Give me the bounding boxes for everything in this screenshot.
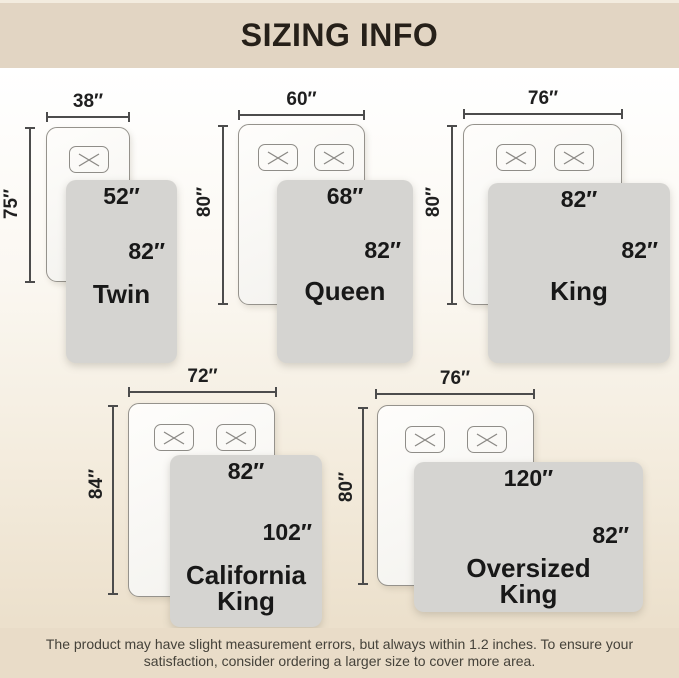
- dimension-line: [238, 114, 365, 116]
- pillow-x-icon: [265, 150, 291, 166]
- pillow-x-icon: [561, 150, 587, 166]
- pillow: [154, 424, 194, 451]
- pillow-x-icon: [76, 152, 102, 168]
- bed-width-dimension: 60″: [238, 89, 365, 116]
- bed-width-dimension: 76″: [463, 88, 623, 115]
- bed-length-label: 80″: [423, 172, 445, 232]
- bed-length-label: 75″: [1, 174, 23, 234]
- blanket: 82″ 102″ California King: [170, 455, 322, 627]
- blanket-length-label: 82″: [592, 522, 629, 549]
- footer-bar: The product may have slight measurement …: [0, 628, 679, 678]
- blanket-length-label: 82″: [364, 237, 401, 264]
- dimension-line: [46, 116, 130, 118]
- pillow-x-icon: [321, 150, 347, 166]
- blanket-width-label: 82″: [488, 186, 670, 213]
- pillow: [467, 426, 507, 453]
- blanket: 68″ 82″ Queen: [277, 180, 413, 363]
- disclaimer-line-2: satisfaction, consider ordering a larger…: [0, 653, 679, 670]
- pillow: [405, 426, 445, 453]
- blanket-length-label: 102″: [263, 519, 312, 546]
- dimension-line: [375, 393, 535, 395]
- pillow: [314, 144, 354, 171]
- bed-width-label: 72″: [187, 366, 217, 388]
- bed-width-dimension: 76″: [375, 368, 535, 395]
- dimension-line: [29, 127, 31, 283]
- pillow-x-icon: [474, 432, 500, 448]
- bed-length-label: 80″: [194, 172, 216, 232]
- pillow-x-icon: [223, 430, 249, 446]
- dimension-line: [463, 113, 623, 115]
- dimension-line: [128, 391, 277, 393]
- blanket: 120″ 82″ Oversized King: [414, 462, 643, 612]
- size-name: King: [514, 278, 644, 304]
- pillow-x-icon: [412, 432, 438, 448]
- blanket-width-label: 68″: [277, 183, 413, 210]
- blanket: 52″ 82″ Twin: [66, 180, 177, 363]
- pillow: [258, 144, 298, 171]
- bed-width-dimension: 72″: [128, 366, 277, 393]
- blanket: 82″ 82″ King: [488, 183, 670, 363]
- page-title: SIZING INFO: [241, 17, 439, 54]
- size-name: Twin: [72, 281, 172, 307]
- pillow: [554, 144, 594, 171]
- dimension-line: [451, 125, 453, 305]
- blanket-width-label: 52″: [66, 183, 177, 210]
- sizing-info-graphic: SIZING INFO 38″ 75″ 52″ 82″ Twin 60″ 80″: [0, 0, 679, 678]
- pillow: [69, 146, 109, 173]
- pillow-x-icon: [161, 430, 187, 446]
- header-bar: SIZING INFO: [0, 0, 679, 68]
- dimension-line: [112, 405, 114, 595]
- blanket-width-label: 120″: [414, 465, 643, 492]
- dimension-line: [222, 125, 224, 305]
- blanket-length-label: 82″: [621, 237, 658, 264]
- size-name: Queen: [280, 278, 410, 304]
- blanket-length-label: 82″: [128, 238, 165, 265]
- blanket-width-label: 82″: [170, 458, 322, 485]
- size-name: California King: [171, 562, 321, 614]
- bed-width-label: 76″: [528, 88, 558, 110]
- size-name: Oversized King: [439, 555, 619, 607]
- pillow: [496, 144, 536, 171]
- bed-width-label: 38″: [73, 91, 103, 113]
- bed-width-label: 76″: [440, 368, 470, 390]
- pillow: [216, 424, 256, 451]
- disclaimer-line-1: The product may have slight measurement …: [0, 636, 679, 653]
- dimension-line: [362, 407, 364, 585]
- bed-length-label: 80″: [336, 457, 358, 517]
- bed-width-dimension: 38″: [46, 91, 130, 118]
- pillow-x-icon: [503, 150, 529, 166]
- bed-width-label: 60″: [286, 89, 316, 111]
- bed-length-label: 84″: [86, 454, 108, 514]
